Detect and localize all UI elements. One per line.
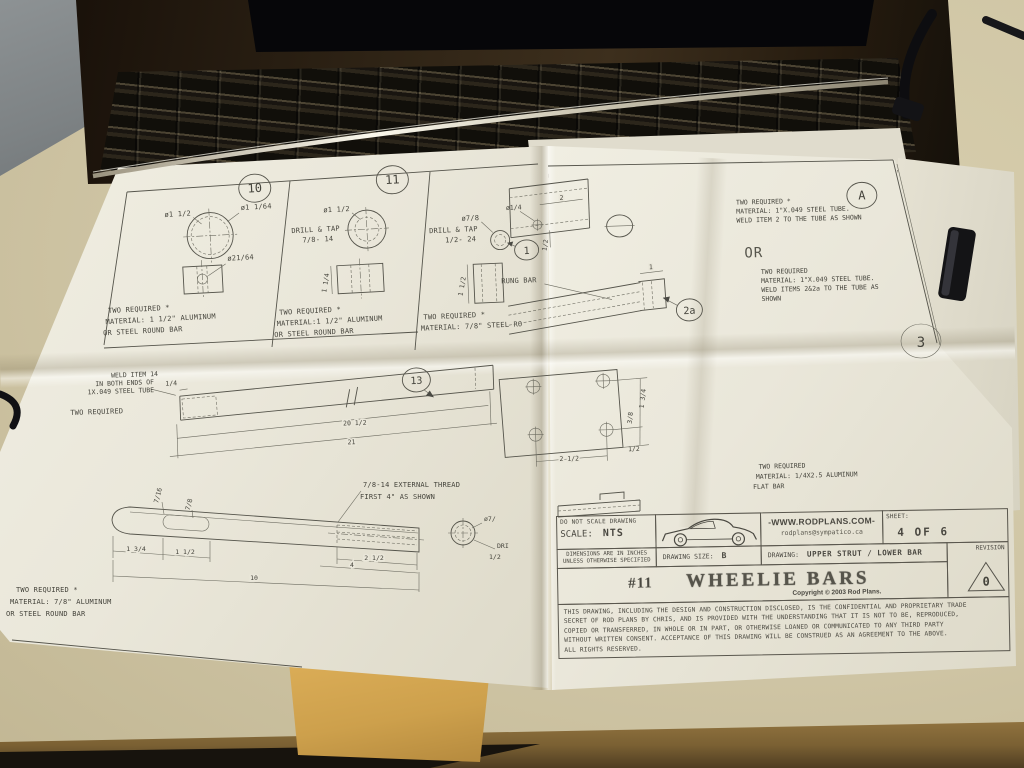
dim-1-3-4: 1 3/4 — [126, 545, 146, 553]
balloon-2a-label: 2a — [683, 306, 695, 317]
dia-inner-label: ø1 1/64 — [241, 202, 272, 212]
power-plug — [891, 96, 925, 122]
dim-half: 1/2 — [540, 239, 550, 252]
part-stub-above-titleblock — [558, 492, 640, 517]
note-a-line: TWO REQUIRED * — [736, 197, 791, 206]
height-dim: 1 1/2 — [457, 276, 468, 297]
qty-note: TWO REQUIRED — [70, 407, 123, 417]
note-line: TWO REQUIRED * — [108, 304, 170, 315]
height-dim: 1 1/4 — [320, 273, 331, 294]
dim-2-1-2: 2 1/2 — [364, 554, 384, 562]
note-line: TWO REQUIRED * — [279, 306, 341, 317]
note-line: MATERIAL: 7/8" ALUMINUM — [10, 598, 112, 606]
thread-note-2: FIRST 4" AS SHOWN — [360, 493, 435, 501]
photo-scene: DO NOT SCALE DRAWING SCALE:NTS -WWW.RODP… — [0, 0, 1024, 768]
cable-left — [0, 394, 17, 426]
dim-1-1-2: 1 1/2 — [175, 548, 195, 556]
pen — [986, 20, 1024, 36]
dia-label: ø1 1/2 — [323, 205, 350, 214]
dim-21: 21 — [347, 438, 355, 446]
rung-bar-view: RUNG BAR 1 2a — [501, 261, 703, 334]
balloon-1-label: 1 — [523, 246, 530, 257]
dim-edge: 1/2 — [628, 445, 640, 453]
note-b-line: SHOWN — [761, 295, 781, 304]
back-sheet-mark: 3 — [901, 324, 941, 358]
tap-label-2: 7/8- 14 — [302, 235, 333, 245]
dim-quarter: 1/4 — [165, 379, 177, 387]
balloon-13-label: 13 — [410, 376, 422, 387]
note-line: MATERIAL: 1 1/2" ALUMINUM — [105, 312, 216, 326]
note-line: MATERIAL:1 1/2" ALUMINUM — [277, 314, 383, 328]
end-tap-label-1: DRI — [497, 542, 509, 550]
note-line: TWO REQUIRED * — [16, 586, 78, 594]
note-line: OR STEEL ROUND BAR — [6, 610, 86, 618]
note-line: TWO REQUIRED * — [423, 311, 485, 322]
dia-outer-label: ø1 1/2 — [164, 210, 191, 219]
tap-label-2: 1/2- 24 — [445, 235, 476, 244]
note-b-line: WELD ITEMS 2&2a TO THE TUBE AS — [761, 283, 879, 294]
sheet-frames — [12, 160, 940, 667]
detail-1: ø7/8 DRILL & TAP 1/2- 24 1 1 1/2 TWO REQ… — [416, 211, 542, 332]
plate-holes — [525, 373, 615, 443]
dim-offset: 3/8 — [626, 412, 635, 425]
end-dia-label: ø7/ — [484, 515, 496, 523]
balloon-A-label: A — [858, 188, 866, 202]
end-tap-label-2: 1/2 — [489, 553, 501, 561]
note-line: TWO REQUIRED — [758, 462, 805, 471]
lower-bar-view: WELD ITEM 14 IN BOTH ENDS OF 1X.049 STEE… — [69, 358, 498, 462]
note-b-line: TWO REQUIRED — [761, 267, 808, 276]
dim-height: 1 3/4 — [638, 388, 648, 408]
note-line: FLAT BAR — [753, 482, 785, 491]
dia-hole-label: ø21/64 — [227, 253, 254, 262]
dim-7-16: 7/16 — [152, 487, 164, 504]
material-notes: TWO REQUIRED * MATERIAL: 1"X.049 STEEL T… — [736, 182, 880, 304]
hole-dia-label: ø1/4 — [506, 203, 522, 212]
strut-bar-view: 7/16 7/8 1 3/4 1 1/2 7/8-14 EXTERNAL THR… — [6, 481, 509, 618]
dia-label: ø7/8 — [461, 214, 479, 223]
rung-bar-label: RUNG BAR — [501, 276, 537, 285]
weld-note-line: 1X.049 STEEL TUBE — [87, 386, 154, 396]
or-text: OR — [744, 245, 763, 261]
balloon-11-label: 11 — [385, 172, 400, 187]
dim-10: 10 — [250, 574, 258, 582]
detail-10: 10 ø1 1/2 ø1 1/64 ø21/64 TWO REQUIRED * … — [95, 173, 278, 337]
dim-width: 2 1/2 — [559, 455, 579, 464]
flat-plate-view: 2 1/2 1 3/4 3/8 1/2 TWO REQUIRED MATERIA… — [499, 363, 858, 497]
dim-4: 4 — [350, 561, 354, 569]
upper-tube-view: ø1/4 2 1/2 — [505, 177, 635, 253]
drawing-linework-layer: 3 10 ø1 1/2 ø1 1/64 ø21/64 TWO REQUIRED … — [0, 0, 1024, 768]
note-line: MATERIAL: 1/4X2.5 ALUMINUM — [756, 470, 858, 481]
note-line: MATERIAL: 7/8" STEEL RO — [421, 320, 523, 332]
thread-note-1: 7/8-14 EXTERNAL THREAD — [363, 481, 460, 489]
power-cable — [904, 14, 932, 114]
back-sheet-number: 3 — [917, 335, 925, 351]
note-line: OR STEEL ROUND BAR — [103, 325, 183, 337]
dim-1: 1 — [649, 263, 653, 271]
tap-label-1: DRILL & TAP — [291, 225, 340, 236]
balloon-10-label: 10 — [247, 181, 262, 196]
dim-20-half: 20 1/2 — [343, 419, 367, 428]
tap-label-1: DRILL & TAP — [429, 225, 478, 235]
dim-7-8: 7/8 — [184, 498, 195, 511]
detail-11: 11 ø1 1/2 DRILL & TAP 7/8- 14 1 1/4 TWO … — [266, 165, 417, 339]
dim-2: 2 — [559, 194, 563, 202]
